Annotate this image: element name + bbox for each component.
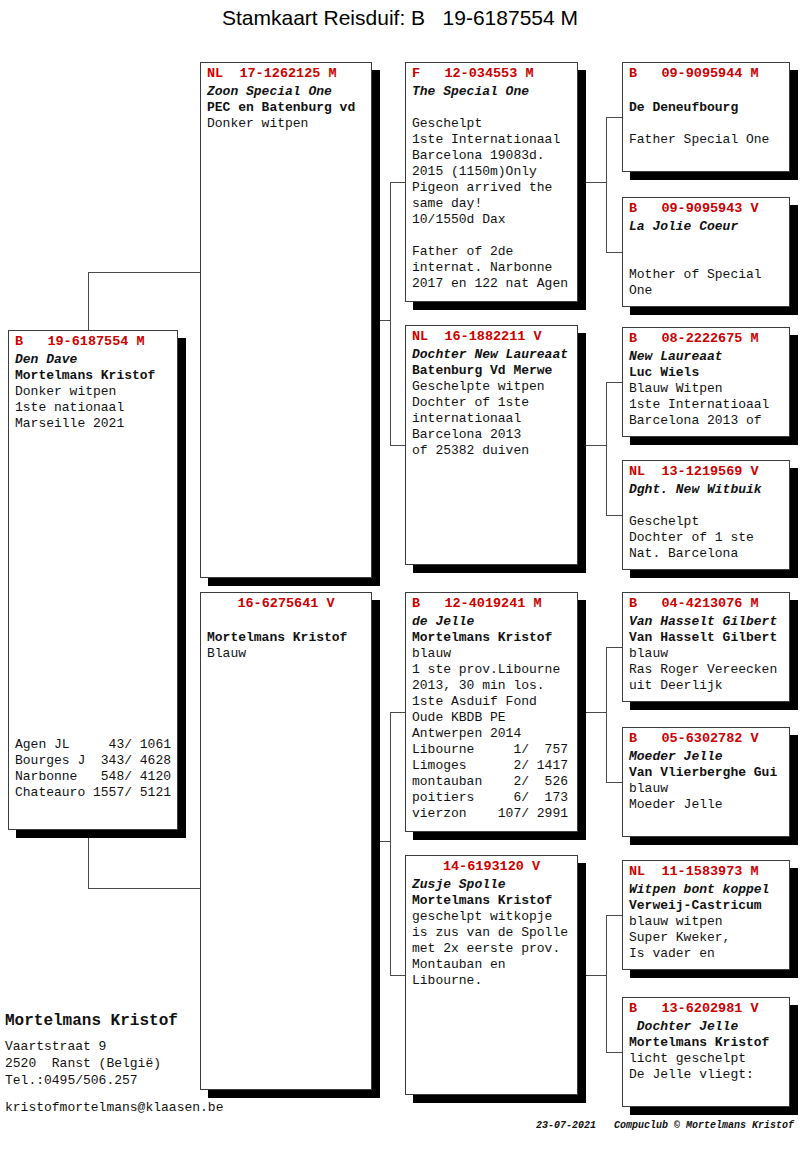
box-line: Marseille 2021 [15, 416, 171, 432]
pedigree-box-sire: NL 17-1262125 M Zoon Special One PEC en … [200, 62, 372, 578]
fancier-name: Luc Wiels [629, 365, 783, 381]
connector-line [606, 382, 622, 383]
box-line: Barcelona 2013 of [629, 413, 783, 429]
connector-line [606, 1052, 622, 1053]
box-line: De Jelle vliegt: [629, 1067, 783, 1083]
pigeon-name: The Special One [412, 84, 571, 100]
box-line: geschelpt witkopje [412, 909, 571, 925]
race-result: Agen JL 43/ 1061 [15, 737, 171, 753]
ring-number: B 08-2222675 M [629, 330, 783, 347]
fancier-name: Mortelmans Kristof [15, 368, 171, 384]
box-line [412, 228, 571, 244]
spacer [15, 432, 171, 737]
box-line [629, 235, 783, 251]
owner-name: Mortelmans Kristof [5, 1012, 178, 1030]
box-line: 1ste Asduif Fond [412, 694, 571, 710]
box-line [629, 116, 783, 132]
connector-line [606, 117, 607, 252]
fancier-name: Mortelmans Kristof [412, 893, 571, 909]
fancier-name: Mortelmans Kristof [629, 1035, 783, 1051]
pigeon-name: Moeder Jelle [629, 749, 783, 765]
box-line: 1ste Internatioaal [629, 397, 783, 413]
box-line: Montauban en [412, 957, 571, 973]
pedigree-box-gg2: B 09-9095943 V La Jolie Coeur Mother of … [622, 197, 790, 307]
pedigree-box-gg3: B 08-2222675 M New Laureaat Luc Wiels Bl… [622, 327, 790, 437]
ring-number: 16-6275641 V [207, 595, 365, 612]
race-result: montauban 2/ 526 [412, 774, 571, 790]
box-line [207, 614, 365, 630]
ring-number: NL 16-1882211 V [412, 328, 571, 345]
connector-line [88, 888, 200, 889]
race-result: Libourne 1/ 757 [412, 742, 571, 758]
footer-credit: Compuclub © Mortelmans Kristof [614, 1120, 794, 1131]
connector-line [579, 445, 607, 446]
connector-line [606, 915, 622, 916]
box-line: Blauw Witpen [629, 381, 783, 397]
race-result: Chateauro 1557/ 5121 [15, 785, 171, 801]
box-line: 1ste Internationaal [412, 132, 571, 148]
box-line: blauw [412, 646, 571, 662]
box-line: 1 ste prov.Libourne [412, 662, 571, 678]
ring-number: F 12-034553 M [412, 65, 571, 82]
ring-number: B 12-4019241 M [412, 595, 571, 612]
connector-line [606, 915, 607, 1052]
connector-line [390, 975, 405, 976]
pedigree-box-sire-dam: NL 16-1882211 V Dochter New Laureaat Bat… [405, 325, 578, 565]
box-line: is zus van de Spolle [412, 925, 571, 941]
box-line: licht geschelpt [629, 1051, 783, 1067]
box-line [412, 100, 571, 116]
race-result: poitiers 6/ 173 [412, 790, 571, 806]
connector-line [606, 515, 622, 516]
box-line: Geschelpte witpen [412, 379, 571, 395]
box-line: Antwerpen 2014 [412, 726, 571, 742]
footer-date: 23-07-2021 [536, 1120, 596, 1131]
connector-line [606, 647, 622, 648]
owner-phone: Tel.:0495/506.257 [5, 1073, 138, 1088]
pigeon-name: Zoon Special One [207, 84, 365, 100]
connector-line [390, 182, 391, 446]
ring-number: B 09-9095944 M [629, 65, 783, 82]
pigeon-name: Zusje Spolle [412, 877, 571, 893]
box-line: One [629, 283, 783, 299]
connector-line [88, 830, 89, 889]
box-line: 1ste nationaal [15, 400, 171, 416]
box-line: Moeder Jelle [629, 797, 783, 813]
pedigree-box-gg6: B 05-6302782 V Moeder Jelle Van Vlierber… [622, 727, 790, 837]
box-line: Blauw [207, 646, 365, 662]
box-line: Oude KBDB PE [412, 710, 571, 726]
box-line: 2013, 30 min los. [412, 678, 571, 694]
pigeon-name: Den Dave [15, 352, 171, 368]
box-line: Donker witpen [15, 384, 171, 400]
connector-line [606, 252, 622, 253]
page-title: Stamkaart Reisduif: B 19-6187554 M [0, 6, 800, 30]
box-line: Geschelpt [629, 514, 783, 530]
ring-number: B 04-4213076 M [629, 595, 783, 612]
connector-line [579, 975, 607, 976]
connector-line [606, 117, 622, 118]
connector-line [390, 445, 405, 446]
fancier-name: Batenburg Vd Merwe [412, 363, 571, 379]
box-line: Pigeon arrived the [412, 180, 571, 196]
box-line: Geschelpt [412, 116, 571, 132]
pedigree-box-dam-dam: 14-6193120 V Zusje Spolle Mortelmans Kri… [405, 855, 578, 1095]
connector-line [606, 382, 607, 515]
box-line [629, 84, 783, 100]
pedigree-box-gg5: B 04-4213076 M Van Hasselt Gilbert Van H… [622, 592, 790, 702]
race-result: Bourges J 343/ 4628 [15, 753, 171, 769]
pigeon-name: Dochter Jelle [629, 1019, 783, 1035]
pedigree-box-sire-sire: F 12-034553 M The Special One Geschelpt … [405, 62, 578, 302]
pedigree-box-gg4: NL 13-1219569 V Dght. New Witbuik Gesche… [622, 460, 790, 570]
race-result: vierzon 107/ 2991 [412, 806, 571, 822]
pigeon-name: Van Hasselt Gilbert [629, 614, 783, 630]
fancier-name: Van Vlierberghe Gui [629, 765, 783, 781]
box-line: blauw [629, 646, 783, 662]
race-result: Narbonne 548/ 4120 [15, 769, 171, 785]
box-line: Dochter of 1 ste [629, 530, 783, 546]
fancier-name: Verweij-Castricum [629, 898, 783, 914]
connector-line [88, 272, 89, 330]
connector-line [606, 782, 622, 783]
box-line: Mother of Special [629, 267, 783, 283]
fancier-name: PEC en Batenburg vd [207, 100, 365, 116]
pedigree-box-gg7: NL 11-1583973 M Witpen bont koppel Verwe… [622, 860, 790, 970]
box-line: Ras Roger Vereecken [629, 662, 783, 678]
box-line: blauw [629, 781, 783, 797]
fancier-name: De Deneufbourg [629, 100, 783, 116]
box-line: internat. Narbonne [412, 260, 571, 276]
box-line: 10/1550d Dax [412, 212, 571, 228]
owner-address-street: Vaartstraat 9 [5, 1039, 106, 1054]
box-line: Barcelona 19083d. [412, 148, 571, 164]
box-line: 2015 (1150m)Only [412, 164, 571, 180]
pigeon-name: New Laureaat [629, 349, 783, 365]
owner-email: kristofmortelmans@klaasen.be [5, 1100, 223, 1115]
pigeon-name: Dochter New Laureaat [412, 347, 571, 363]
ring-number: 14-6193120 V [412, 858, 571, 875]
ring-number: NL 17-1262125 M [207, 65, 365, 82]
box-line: Father of 2de [412, 244, 571, 260]
fancier-name: Mortelmans Kristof [412, 630, 571, 646]
connector-line [373, 320, 391, 321]
connector-line [88, 272, 200, 273]
box-line: blauw witpen [629, 914, 783, 930]
box-line: Is vader en [629, 946, 783, 962]
box-line: Donker witpen [207, 116, 365, 132]
box-line [629, 251, 783, 267]
box-line: Father Special One [629, 132, 783, 148]
owner-address-city: 2520 Ranst (België) [5, 1056, 161, 1071]
ring-number: B 05-6302782 V [629, 730, 783, 747]
box-line: of 25382 duiven [412, 443, 571, 459]
box-line: Barcelona 2013 [412, 427, 571, 443]
connector-line [390, 182, 405, 183]
pedigree-box-gg8: B 13-6202981 V Dochter Jelle Mortelmans … [622, 997, 790, 1107]
connector-line [579, 182, 607, 183]
connector-line [606, 647, 607, 782]
pedigree-box-subject: B 19-6187554 M Den Dave Mortelmans Krist… [8, 330, 178, 830]
race-result: Limoges 2/ 1417 [412, 758, 571, 774]
box-line: uit Deerlijk [629, 678, 783, 694]
box-line: met 2x eerste prov. [412, 941, 571, 957]
box-line: Dochter of 1ste [412, 395, 571, 411]
connector-line [373, 841, 391, 842]
ring-number: B 09-9095943 V [629, 200, 783, 217]
box-line [629, 498, 783, 514]
pigeon-name: La Jolie Coeur [629, 219, 783, 235]
ring-number: B 13-6202981 V [629, 1000, 783, 1017]
box-line: Libourne. [412, 973, 571, 989]
connector-line [390, 712, 391, 976]
connector-line [390, 712, 405, 713]
pedigree-box-gg1: B 09-9095944 M De Deneufbourg Father Spe… [622, 62, 790, 172]
pigeon-name: Witpen bont koppel [629, 882, 783, 898]
pigeon-name: de Jelle [412, 614, 571, 630]
pedigree-box-dam-sire: B 12-4019241 M de Jelle Mortelmans Krist… [405, 592, 578, 832]
box-line: Super Kweker, [629, 930, 783, 946]
box-line: 2017 en 122 nat Agen [412, 276, 571, 292]
fancier-name: Mortelmans Kristof [207, 630, 365, 646]
box-line: same day! [412, 196, 571, 212]
connector-line [579, 712, 607, 713]
pigeon-name: Dght. New Witbuik [629, 482, 783, 498]
footer: 23-07-2021Compuclub © Mortelmans Kristof [536, 1120, 794, 1131]
box-line: Nat. Barcelona [629, 546, 783, 562]
pedigree-box-dam: 16-6275641 V Mortelmans Kristof Blauw [200, 592, 372, 1090]
ring-number: NL 11-1583973 M [629, 863, 783, 880]
box-line: internationaal [412, 411, 571, 427]
ring-number: B 19-6187554 M [15, 333, 171, 350]
fancier-name: Van Hasselt Gilbert [629, 630, 783, 646]
ring-number: NL 13-1219569 V [629, 463, 783, 480]
